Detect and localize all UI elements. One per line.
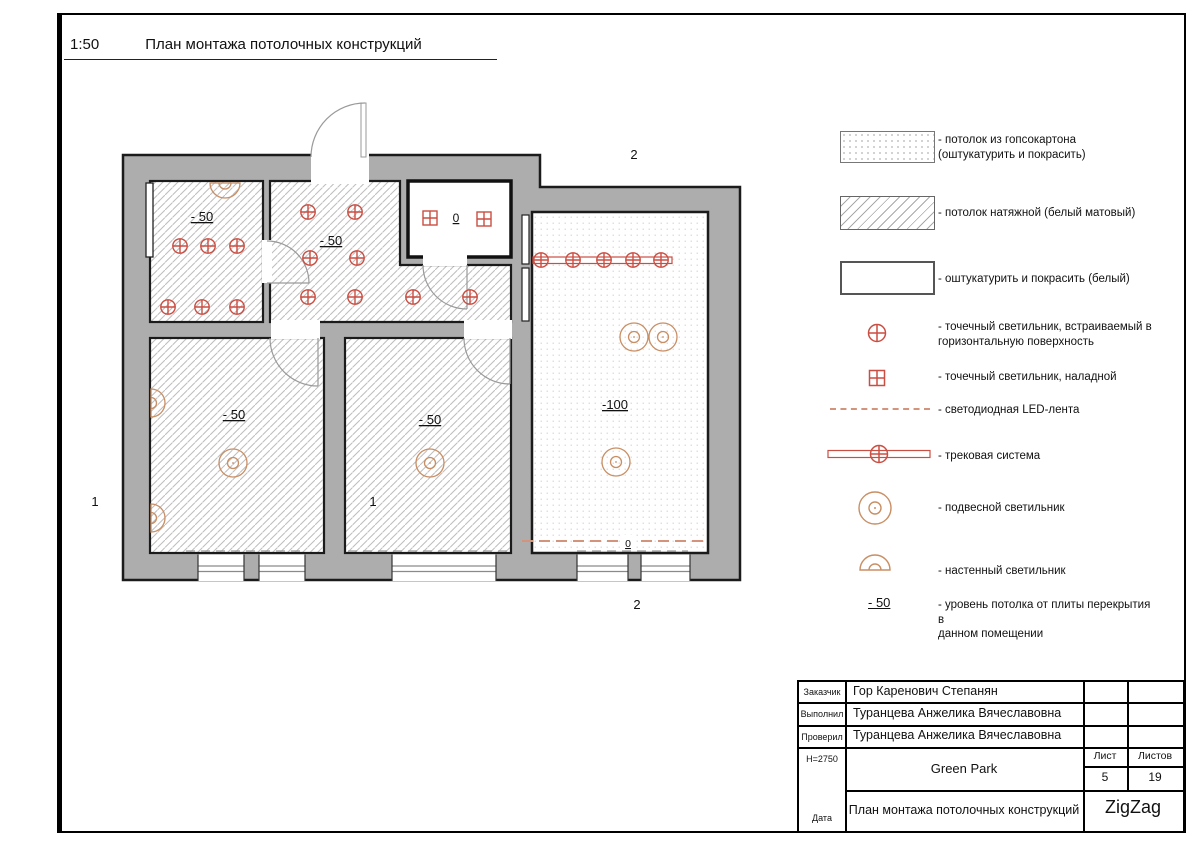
client-value: Гор Каренович Степанян — [853, 684, 998, 698]
rooms — [150, 181, 708, 553]
legend-label: - оштукатурить и покрасить (белый) — [938, 272, 1158, 287]
height-mark: Н=2750 — [799, 754, 845, 764]
led-level-label: 0 — [625, 538, 631, 550]
level-label: - 50 — [320, 233, 342, 248]
room-bottom-middle — [345, 338, 511, 553]
author-label: Выполнил — [799, 709, 845, 719]
glazed-slot — [522, 268, 529, 321]
wall-light-icon — [855, 550, 895, 572]
surface-spotlight-icon — [867, 368, 887, 388]
plain-swatch — [840, 261, 935, 295]
level-label: - 50 — [223, 407, 245, 422]
led-strip-icon — [830, 408, 930, 410]
company-logo: ZigZag — [1105, 797, 1161, 818]
level-label: -100 — [602, 397, 628, 412]
window — [198, 555, 244, 582]
entrance-door — [311, 103, 369, 184]
axis-label: 2 — [633, 597, 640, 612]
axis-label: 2 — [630, 147, 637, 162]
axis-label: 1 — [369, 494, 376, 509]
sheet-number: 5 — [1102, 770, 1109, 784]
window — [392, 555, 496, 582]
legend-label: - подвесной светильник — [938, 501, 1158, 516]
legend-label: - трековая система — [938, 449, 1158, 464]
legend-label: - потолок из гопсокартона (оштукатурить … — [938, 133, 1158, 162]
date-label: Дата — [799, 813, 845, 823]
title-block: Заказчик Гор Каренович Степанян Выполнил… — [797, 680, 1185, 833]
client-label: Заказчик — [799, 687, 845, 697]
window — [577, 555, 628, 582]
legend-label: - потолок натяжной (белый матовый) — [938, 206, 1158, 221]
recessed-spotlight-icon — [865, 321, 889, 345]
drawing-sheet: - 50 - 50 0 - 50 - 50 -100 0 1 1 2 2 1:5… — [0, 0, 1199, 848]
room-bottom-left — [150, 338, 324, 553]
legend-label: - точечный светильник, наладной — [938, 370, 1158, 385]
window — [259, 555, 305, 582]
level-label: - 50 — [419, 412, 441, 427]
legend-label: - уровень потолка от плиты перекрытия в … — [938, 598, 1158, 642]
sheet-label: Лист — [1094, 750, 1117, 762]
windows — [186, 551, 690, 581]
window — [641, 555, 690, 582]
hatch-dots-swatch — [840, 131, 935, 163]
project-name: Green Park — [931, 761, 997, 776]
legend-label: - точечный светильник, встраиваемый в го… — [938, 320, 1158, 349]
wall-niche — [146, 183, 153, 257]
sheets-total: 19 — [1148, 770, 1161, 784]
legend-label: - светодиодная LED-лента — [938, 403, 1158, 418]
sheet-header: 1:50План монтажа потолочных конструкций — [64, 36, 497, 60]
sheets-label: Листов — [1138, 750, 1172, 762]
checker-label: Проверил — [799, 732, 845, 742]
page-title: План монтажа потолочных конструкций — [145, 36, 422, 53]
level-mark: - 50 — [868, 595, 890, 610]
checker-value: Туранцева Анжелика Вячеславовна — [853, 728, 1061, 742]
track-system-icon — [826, 443, 932, 465]
level-label: - 50 — [191, 209, 213, 224]
pendant-light-icon — [853, 486, 897, 530]
hatch-diagonal-swatch — [840, 196, 935, 230]
glazed-slot — [522, 215, 529, 264]
level-label: 0 — [453, 211, 460, 225]
drawing-title: План монтажа потолочных конструкций — [849, 803, 1079, 817]
axis-label: 1 — [91, 494, 98, 509]
author-value: Туранцева Анжелика Вячеславовна — [853, 706, 1061, 720]
legend-label: - настенный светильник — [938, 564, 1158, 579]
scale-label: 1:50 — [70, 36, 99, 53]
